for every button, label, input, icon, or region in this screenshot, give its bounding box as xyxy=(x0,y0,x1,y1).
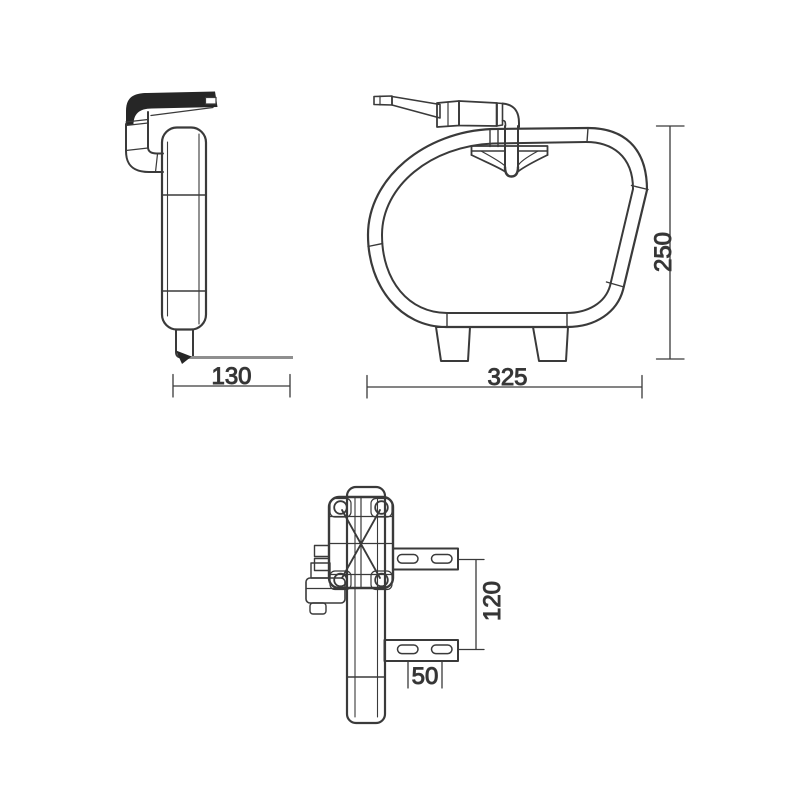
dim-50: 50 xyxy=(408,661,442,690)
latch-body xyxy=(306,578,345,603)
seat-shading-lines xyxy=(168,134,200,324)
ring-foot-left xyxy=(436,327,470,361)
slot xyxy=(432,555,453,564)
dim-120: 120 xyxy=(458,560,506,650)
back-view: 120 50 xyxy=(306,487,506,723)
bracket-lower-body xyxy=(385,640,459,661)
dim-120-label: 120 xyxy=(479,581,506,621)
dim-325: 325 xyxy=(367,364,642,398)
slot xyxy=(432,645,453,654)
mount-clamp xyxy=(472,126,548,177)
bracket-lower xyxy=(385,640,459,661)
clamp-pipe xyxy=(505,126,518,168)
front-view: 325 250 xyxy=(367,96,684,398)
dim-250: 250 xyxy=(650,126,684,359)
slot xyxy=(398,555,419,564)
drawing-canvas: 130 3 xyxy=(0,0,800,800)
latch-tab xyxy=(315,559,330,571)
bracket-upper-body xyxy=(393,549,458,570)
dim-250-label: 250 xyxy=(650,232,677,272)
dim-130-label: 130 xyxy=(211,363,251,390)
side-view: 130 xyxy=(126,92,293,398)
support-arm-tube-inner xyxy=(148,112,163,154)
dim-130: 130 xyxy=(173,363,290,397)
handle-end-notch xyxy=(206,98,217,105)
ratchet-body xyxy=(459,101,497,126)
column-shading-lines xyxy=(355,497,378,717)
ring-foot-right xyxy=(533,327,568,361)
latch-lug xyxy=(310,603,326,614)
handle-underside-line xyxy=(151,108,213,116)
plate-rib-lines xyxy=(329,497,393,588)
latch-tab xyxy=(315,546,330,557)
ratchet-lever xyxy=(374,96,519,127)
mount-column xyxy=(347,487,385,723)
release-latch xyxy=(306,546,345,615)
bracket-upper xyxy=(393,549,458,570)
technical-drawing-sheet: 130 3 xyxy=(0,0,800,800)
dim-50-label: 50 xyxy=(412,663,439,690)
screw-hole xyxy=(334,501,347,514)
dim-325-label: 325 xyxy=(487,364,527,391)
clamp-wing-curves xyxy=(472,155,548,172)
clamp-pipe-cap xyxy=(505,167,518,177)
lever-tip xyxy=(374,96,392,105)
slot xyxy=(398,645,419,654)
ring-inner xyxy=(382,142,633,313)
lever-shaft xyxy=(392,97,440,119)
